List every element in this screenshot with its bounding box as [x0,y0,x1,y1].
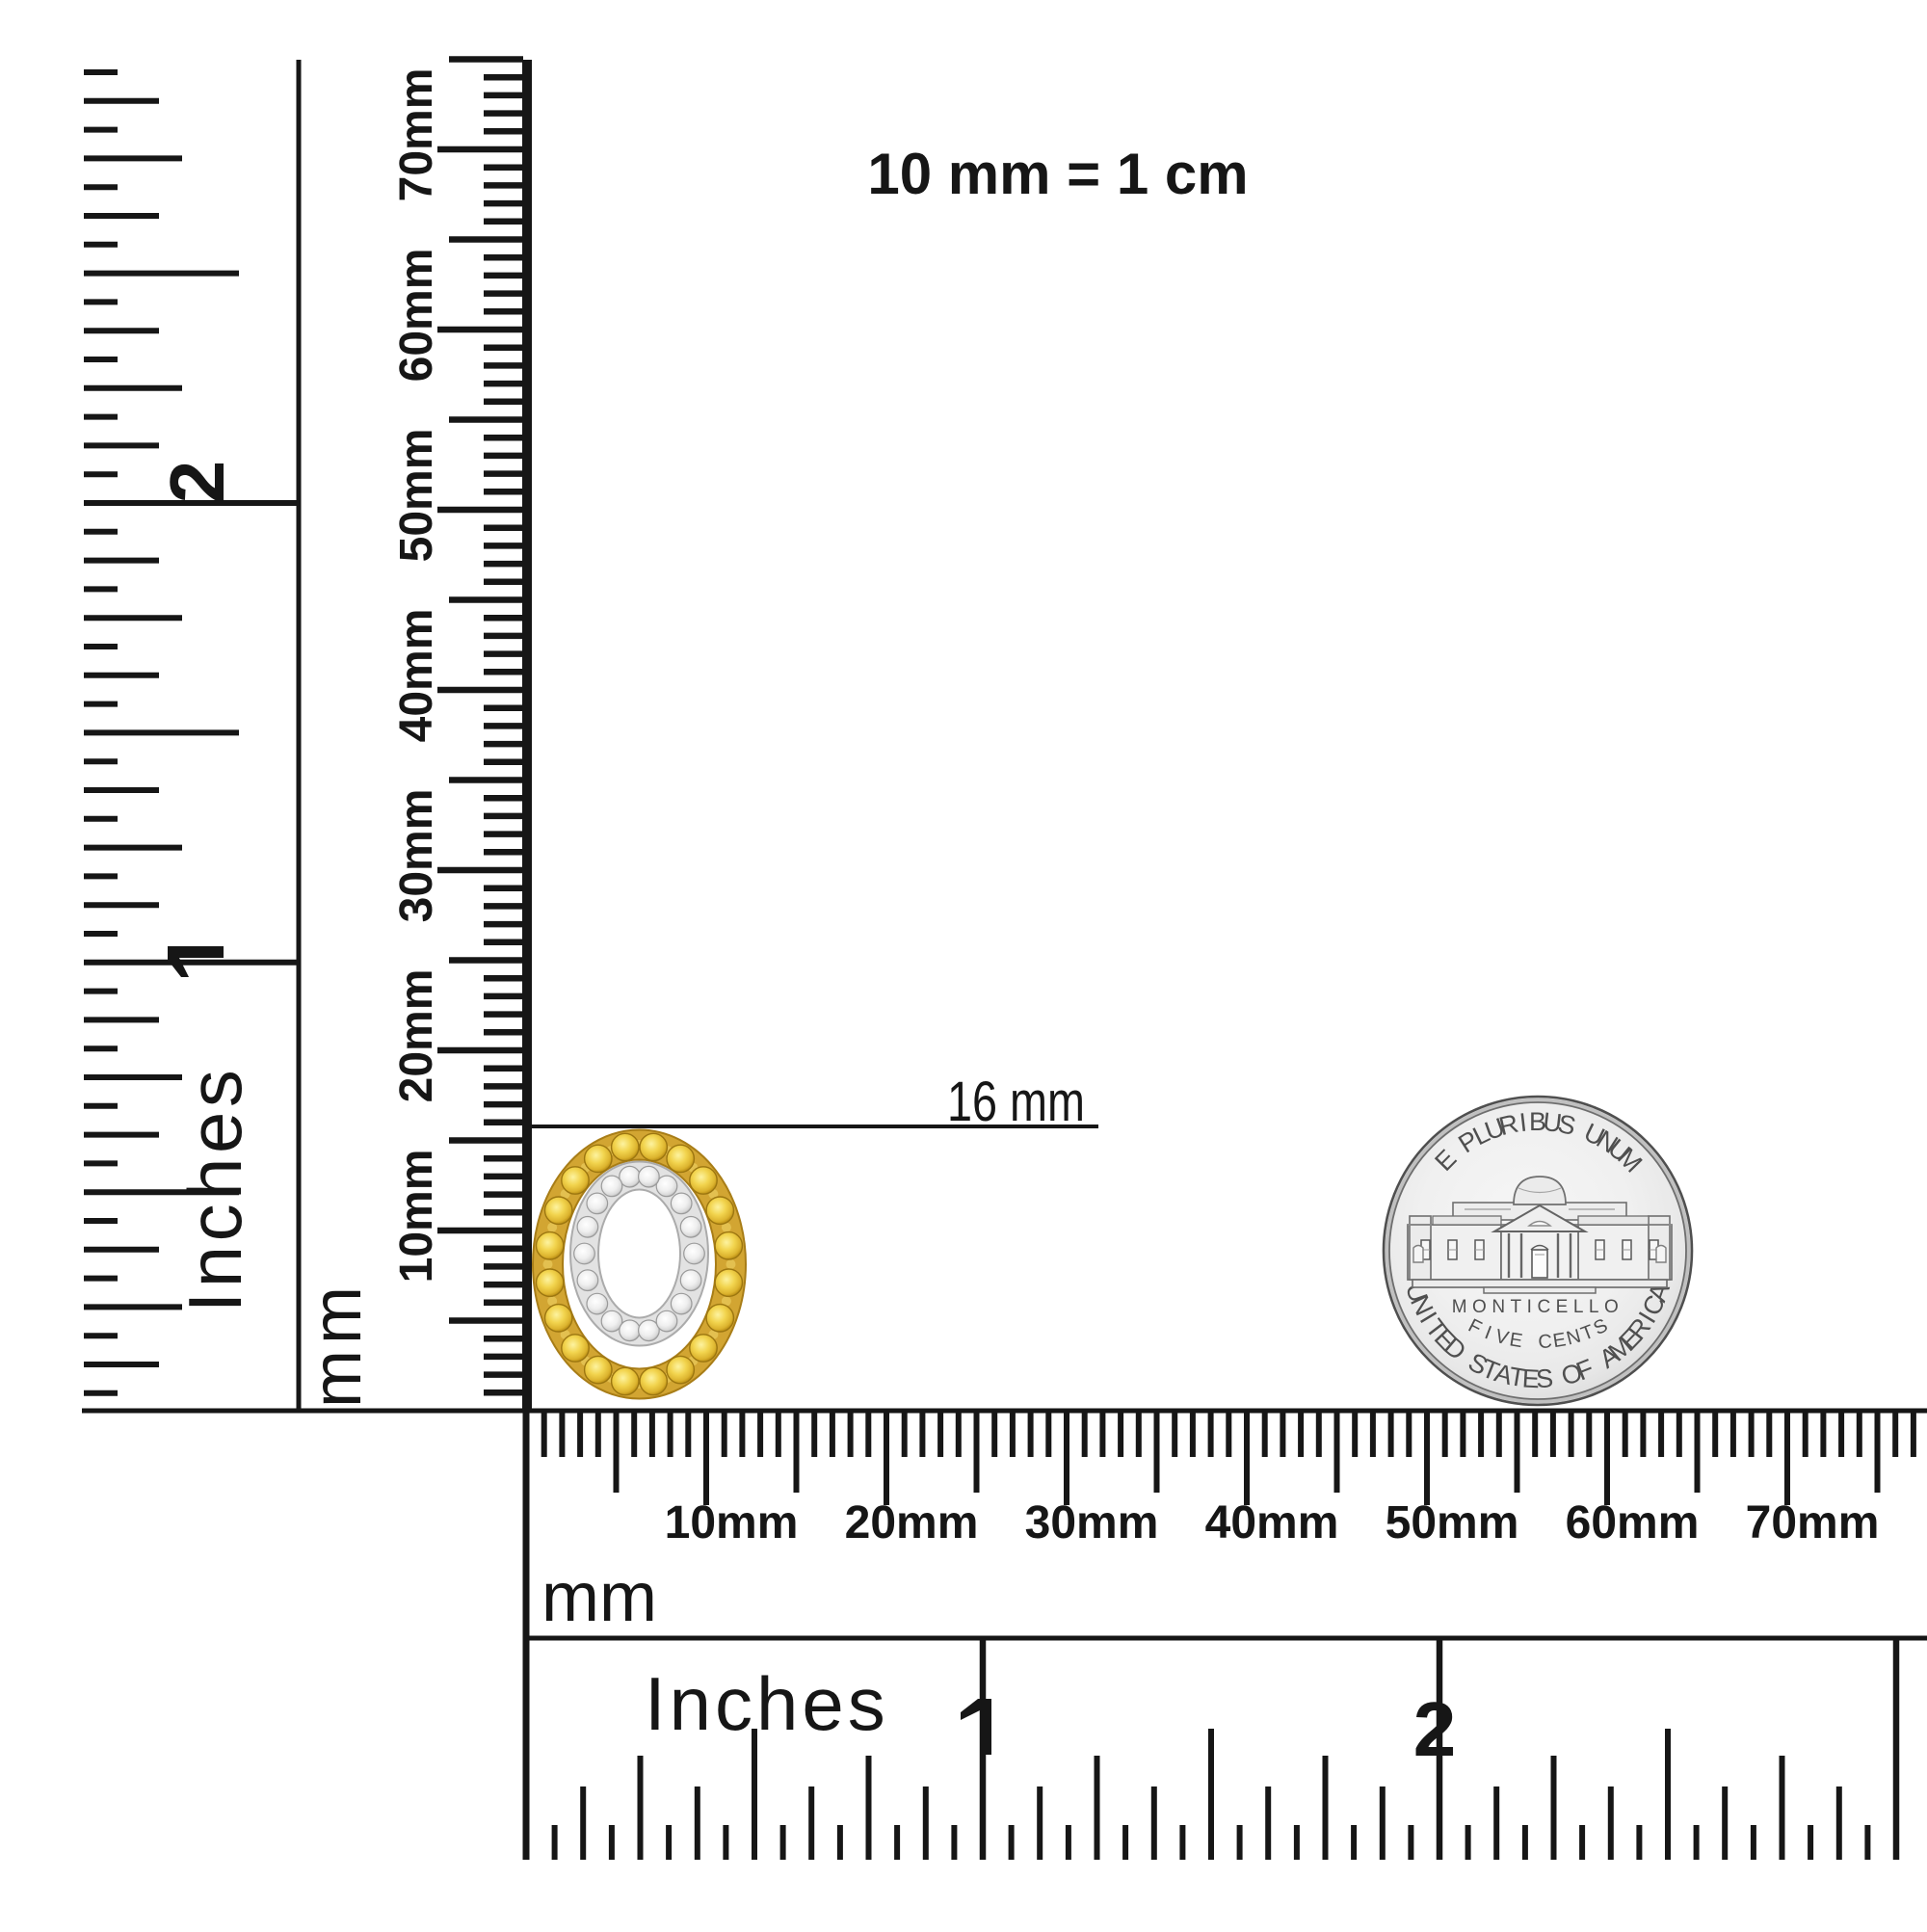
svg-text:C: C [1538,1331,1553,1353]
svg-text:16 mm: 16 mm [947,1071,1085,1133]
svg-text:50mm: 50mm [1386,1497,1519,1548]
svg-text:40mm: 40mm [391,609,442,743]
svg-text:60mm: 60mm [1566,1497,1700,1548]
svg-text:mm: mm [299,1281,376,1408]
svg-text:2: 2 [154,461,240,504]
svg-text:70mm: 70mm [1746,1497,1880,1548]
svg-text:20mm: 20mm [391,969,442,1103]
svg-text:Inches: Inches [172,1066,257,1313]
svg-text:70mm: 70mm [391,68,442,202]
svg-text:S: S [1535,1363,1554,1393]
svg-text:60mm: 60mm [391,249,442,383]
svg-text:30mm: 30mm [391,789,442,923]
svg-text:30mm: 30mm [1025,1497,1159,1548]
svg-text:50mm: 50mm [391,429,442,563]
svg-text:10mm: 10mm [665,1497,799,1548]
svg-text:40mm: 40mm [1205,1497,1339,1548]
svg-text:mm: mm [541,1559,657,1636]
svg-text:2: 2 [1413,1686,1457,1772]
svg-text:Inches: Inches [645,1661,889,1746]
svg-text:10mm: 10mm [391,1150,442,1284]
svg-text:20mm: 20mm [845,1497,979,1548]
svg-text:MONTICELLO: MONTICELLO [1452,1297,1624,1317]
svg-text:10 mm = 1 cm: 10 mm = 1 cm [867,142,1248,206]
